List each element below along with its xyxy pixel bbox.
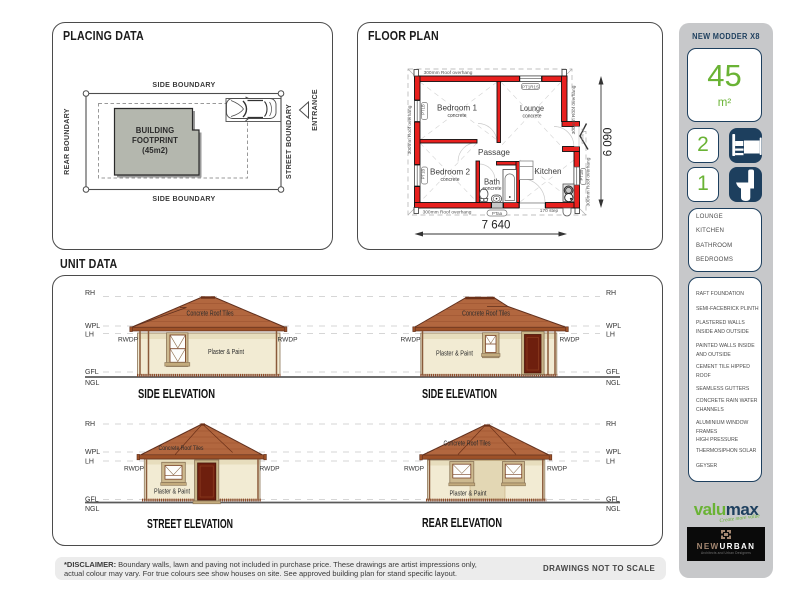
svg-text:concrete: concrete bbox=[483, 186, 502, 192]
svg-text:SIDE ELEVATION: SIDE ELEVATION bbox=[138, 386, 215, 401]
svg-text:PT1B: PT1B bbox=[579, 170, 584, 181]
svg-text:Lounge: Lounge bbox=[520, 103, 544, 113]
svg-text:Concrete Roof Tiles: Concrete Roof Tiles bbox=[159, 445, 205, 452]
svg-text:170 step: 170 step bbox=[540, 208, 559, 214]
svg-text:RH: RH bbox=[606, 421, 616, 428]
svg-text:Bedroom 2: Bedroom 2 bbox=[430, 167, 470, 177]
svg-text:Concrete Roof Tiles: Concrete Roof Tiles bbox=[462, 309, 510, 318]
svg-text:entrance: entrance bbox=[580, 127, 585, 143]
svg-text:Kitchen: Kitchen bbox=[535, 166, 562, 176]
svg-text:PTaa: PTaa bbox=[492, 211, 503, 216]
svg-text:STREET BOUNDARY: STREET BOUNDARY bbox=[285, 104, 293, 179]
svg-text:Concrete Roof Tiles: Concrete Roof Tiles bbox=[444, 441, 491, 448]
svg-text:WPL: WPL bbox=[606, 449, 621, 456]
svg-text:NGL: NGL bbox=[85, 380, 100, 387]
svg-text:(45m2): (45m2) bbox=[142, 146, 168, 155]
svg-text:Plaster & Paint: Plaster & Paint bbox=[154, 489, 190, 496]
svg-text:Bedroom 1: Bedroom 1 bbox=[437, 103, 477, 113]
svg-text:Passage: Passage bbox=[478, 147, 510, 157]
svg-text:7 640: 7 640 bbox=[482, 220, 511, 232]
svg-text:RH: RH bbox=[606, 290, 616, 297]
svg-text:GFL: GFL bbox=[606, 497, 620, 504]
svg-text:Plaster & Paint: Plaster & Paint bbox=[450, 491, 487, 498]
svg-text:STREET ELEVATION: STREET ELEVATION bbox=[147, 516, 233, 531]
svg-text:PT1R1S: PT1R1S bbox=[522, 84, 539, 89]
svg-text:300mm Roof overhang: 300mm Roof overhang bbox=[407, 105, 413, 154]
svg-text:RWDP: RWDP bbox=[400, 337, 421, 344]
svg-text:WPL: WPL bbox=[606, 323, 621, 330]
svg-text:RWDP: RWDP bbox=[259, 466, 280, 473]
svg-text:SIDE BOUNDARY: SIDE BOUNDARY bbox=[152, 195, 215, 203]
svg-text:REAR BOUNDARY: REAR BOUNDARY bbox=[63, 108, 71, 175]
svg-text:GFL: GFL bbox=[85, 497, 99, 504]
svg-text:concrete: concrete bbox=[523, 114, 542, 120]
svg-text:300mm Roof overhang: 300mm Roof overhang bbox=[423, 210, 472, 216]
svg-text:300mm Roof overhang: 300mm Roof overhang bbox=[586, 157, 592, 206]
svg-text:300mm Roof overhang: 300mm Roof overhang bbox=[571, 85, 577, 134]
svg-text:RWDP: RWDP bbox=[404, 466, 425, 473]
svg-text:REAR ELEVATION: REAR ELEVATION bbox=[422, 515, 502, 530]
svg-text:concrete: concrete bbox=[441, 177, 460, 183]
svg-text:WPL: WPL bbox=[85, 323, 100, 330]
svg-text:RWDP: RWDP bbox=[124, 466, 145, 473]
svg-text:GFL: GFL bbox=[85, 369, 99, 376]
svg-text:RWDP: RWDP bbox=[547, 466, 568, 473]
svg-text:GFL: GFL bbox=[606, 369, 620, 376]
svg-text:ENTRANCE: ENTRANCE bbox=[311, 89, 319, 131]
svg-text:RWDP: RWDP bbox=[559, 337, 580, 344]
svg-text:LH: LH bbox=[85, 332, 94, 339]
svg-text:RH: RH bbox=[85, 421, 95, 428]
svg-text:Plaster & Paint: Plaster & Paint bbox=[436, 351, 473, 358]
svg-text:6 090: 6 090 bbox=[603, 128, 615, 157]
svg-text:LH: LH bbox=[85, 459, 94, 466]
svg-text:RWDP: RWDP bbox=[277, 337, 298, 344]
svg-text:BUILDING: BUILDING bbox=[136, 126, 174, 135]
svg-text:LH: LH bbox=[606, 332, 615, 339]
svg-text:PT1B: PT1B bbox=[421, 169, 426, 180]
svg-text:WPL: WPL bbox=[85, 449, 100, 456]
svg-text:LH: LH bbox=[606, 459, 615, 466]
svg-text:Concrete Roof Tiles: Concrete Roof Tiles bbox=[187, 309, 234, 318]
svg-text:concrete: concrete bbox=[448, 113, 467, 119]
svg-text:SIDE ELEVATION: SIDE ELEVATION bbox=[422, 386, 497, 401]
svg-text:PT1B: PT1B bbox=[421, 104, 426, 115]
svg-text:SIDE BOUNDARY: SIDE BOUNDARY bbox=[152, 81, 215, 89]
svg-text:NGL: NGL bbox=[85, 506, 100, 513]
svg-text:RWDP: RWDP bbox=[118, 337, 139, 344]
svg-text:NGL: NGL bbox=[606, 506, 621, 513]
svg-text:Plaster & Paint: Plaster & Paint bbox=[208, 349, 244, 356]
svg-text:300mm Roof overhang: 300mm Roof overhang bbox=[424, 70, 473, 76]
svg-text:FOOTPRINT: FOOTPRINT bbox=[132, 136, 178, 145]
svg-text:RH: RH bbox=[85, 290, 95, 297]
svg-text:NGL: NGL bbox=[606, 380, 621, 387]
